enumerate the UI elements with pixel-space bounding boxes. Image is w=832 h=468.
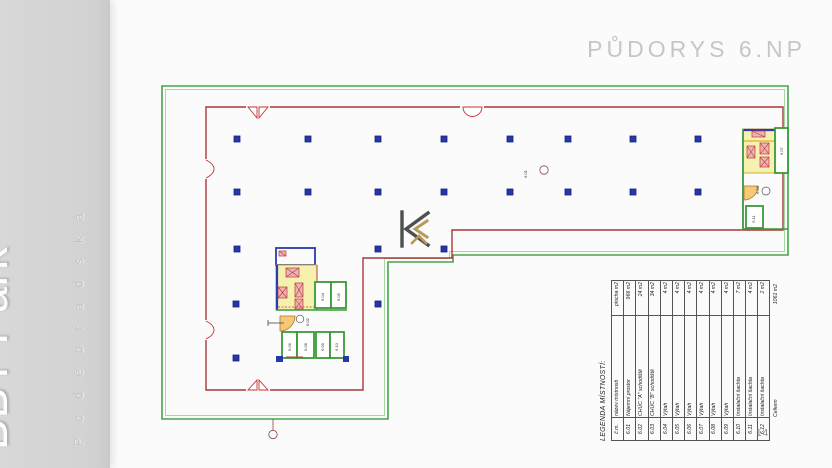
section-mark-circle [762,187,770,195]
table-row: 6.09Výtah4 m2 [721,281,733,441]
table-row: 6.10Instalační šachta7 m2 [733,281,745,441]
room-label: 6.05 [336,292,341,301]
room-label: 6.07 [779,146,784,155]
marker-circle [269,430,277,438]
col-header-name: název místnosti [612,316,624,418]
k-logo-icon [402,212,428,246]
col-header-num: č.m. [612,418,624,441]
east-core: 6.07 6.03 6.11 [743,128,788,229]
room-label: 6.11 [751,214,756,222]
room-label: 6.04 [320,292,325,301]
total-area: 1061 m2 [773,284,779,317]
room-label: 6.08 [303,342,308,351]
table-row: 6.02CHÚC "A" schodiště24 m2 [636,281,648,441]
legend-total-row: Celkem 1061 m2 [773,283,779,441]
table-row: 6.08Výtah4 m2 [709,281,721,441]
table-row: 6.03CHÚC "B" schodiště34 m2 [648,281,660,441]
table-row: 6.05Výtah4 m2 [672,281,684,441]
section-mark-circle [296,315,304,323]
legend-title: LEGENDA MÍSTNOSTÍ: [600,283,607,441]
slide-page: BBT Park P o d ě b r a d s k á PŮDORYS 6… [0,0,832,468]
room-label: 6.03 [755,185,760,194]
table-row: 6.07Výtah4 m2 [697,281,709,441]
legend-room-table: č.m. název místnosti plocha m2 6.01Nájem… [611,280,770,441]
page-number: 14 [756,428,769,439]
shaft-room [276,248,315,265]
section-mark-circle [540,166,548,174]
door-arc-icon [280,316,295,331]
total-label: Celkem [773,317,779,417]
room-label: 6.09 [320,342,325,351]
room-label: 6.06 [287,342,292,351]
table-row: 6.04Výtah4 m2 [660,281,672,441]
table-row: 6.12Instalační šachta2 m2 [758,281,770,441]
table-row: 6.11Instalační šachta4 m2 [746,281,758,441]
table-row: 6.06Výtah4 m2 [685,281,697,441]
col-header-area: plocha m2 [612,281,624,316]
table-header-row: č.m. název místnosti plocha m2 [612,281,624,441]
table-row: 6.01Nájemní prostor966 m2 [624,281,636,441]
room-label: 6.01 [523,169,528,178]
door-arc-icon [463,107,482,117]
room-label: 6.10 [334,342,339,351]
legend: LEGENDA MÍSTNOSTÍ: č.m. název místnosti … [600,283,790,441]
central-core: 6.02 6.04 6.05 6.06 6.08 6.09 6.10 [268,248,349,362]
room-label: 6.02 [305,317,310,326]
